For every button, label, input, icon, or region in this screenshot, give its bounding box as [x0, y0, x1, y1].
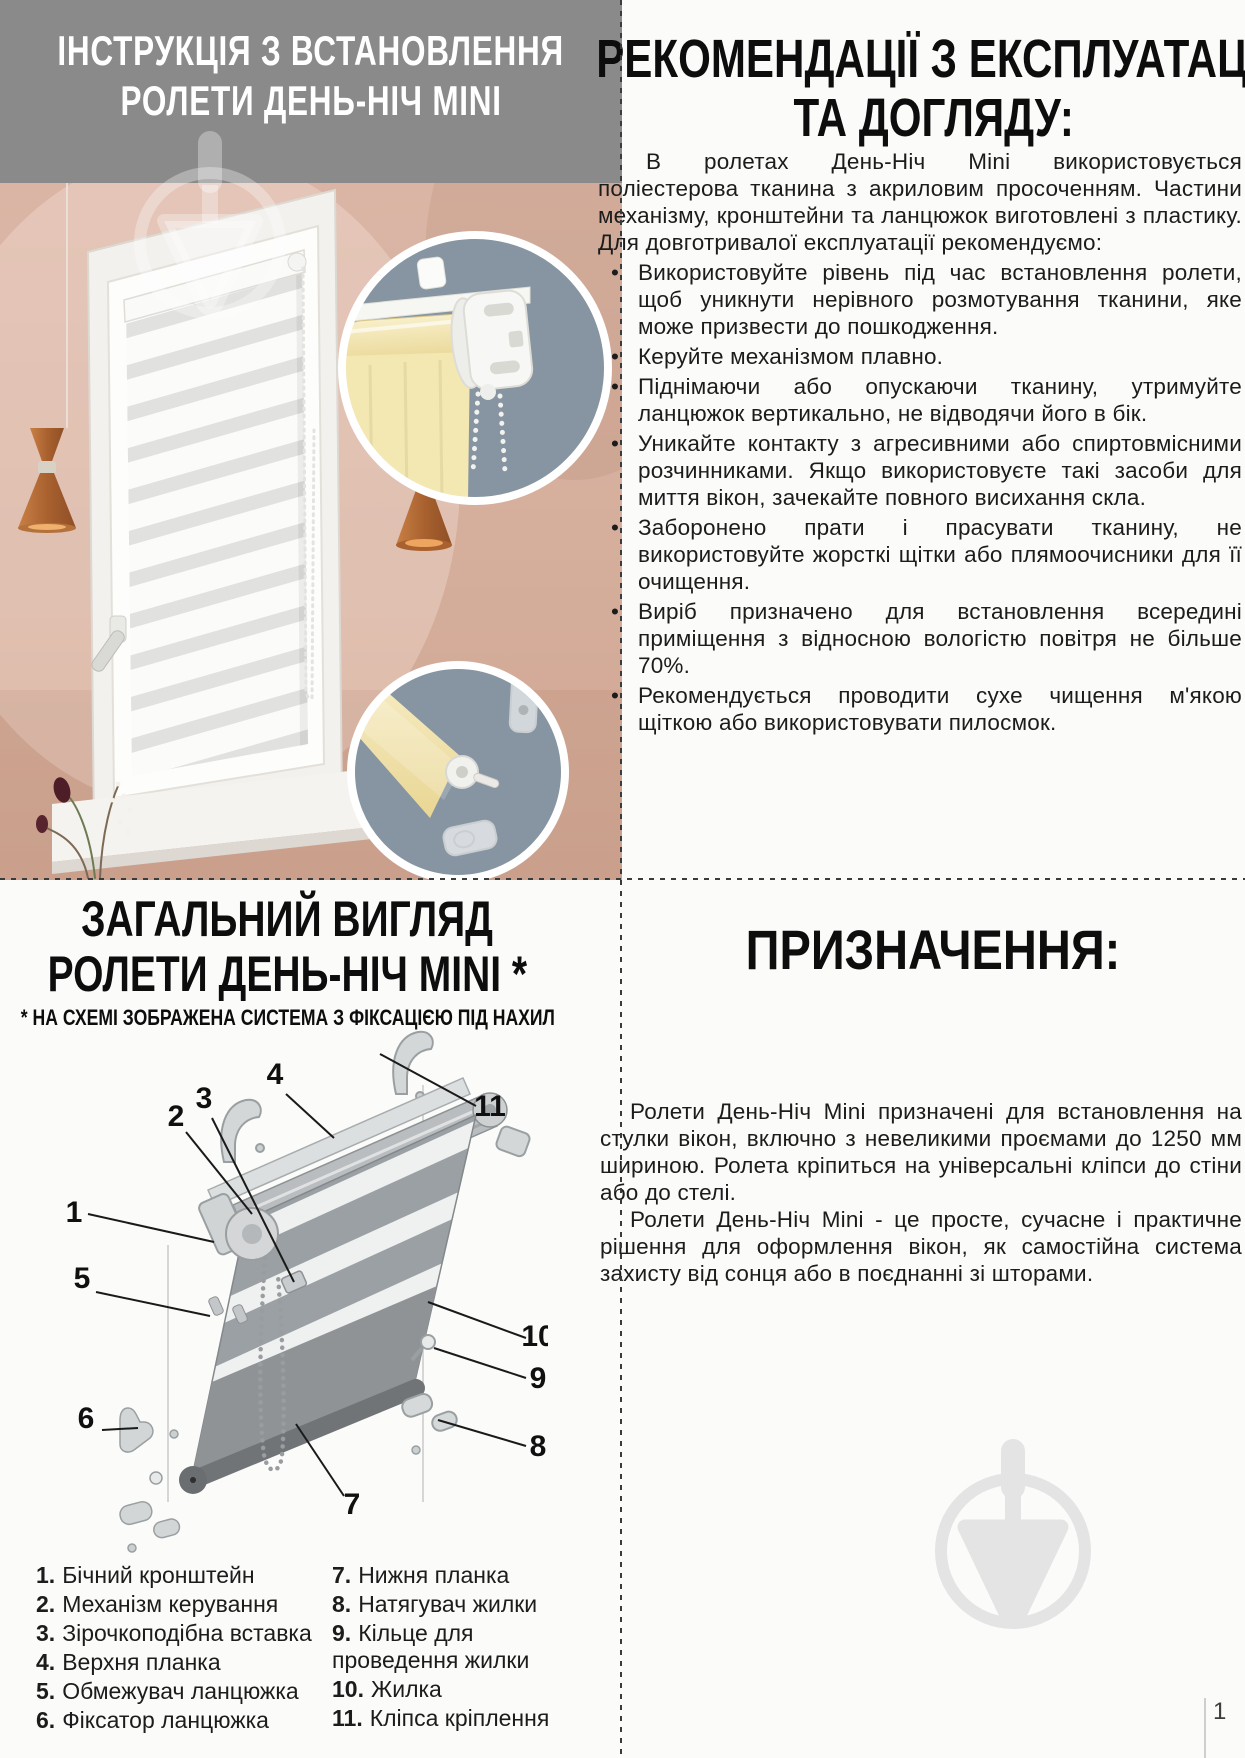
- legend-item: 10.Жилка: [332, 1676, 564, 1703]
- list-item: Керуйте механізмом плавно.: [598, 343, 1242, 370]
- purpose-title: ПРИЗНАЧЕННЯ:: [622, 920, 1245, 980]
- callout-4: 4: [267, 1058, 284, 1091]
- page-number: 1: [1213, 1698, 1226, 1726]
- installation-photo: ІНСТРУКЦІЯ З ВСТАНОВЛЕННЯ РОЛЕТИ ДЕНЬ-НІ…: [0, 0, 622, 880]
- overview-title-line1: ЗАГАЛЬНИЙ ВИГЛЯД: [82, 892, 494, 947]
- overview-title: ЗАГАЛЬНИЙ ВИГЛЯД РОЛЕТИ ДЕНЬ-НІЧ MINI * …: [0, 892, 575, 1032]
- legend-item: 1.Бічний кронштейн: [36, 1562, 336, 1589]
- legend-item: 3.Зірочкоподібна вставка: [36, 1620, 336, 1647]
- legend-column-right: 7.Нижня планка 8.Натягувач жилки 9.Кільц…: [332, 1560, 564, 1734]
- recommendations-body: В ролетах День-Ніч Mini використовується…: [598, 148, 1242, 739]
- callout-3: 3: [196, 1082, 213, 1115]
- inset-photo-top-mechanism: [339, 235, 608, 501]
- list-item: Використовуйте рівень під час встановлен…: [598, 259, 1242, 340]
- legend-item: 11.Кліпса кріплення: [332, 1705, 564, 1732]
- list-item: Піднімаючи або опускаючи тканину, утриму…: [598, 373, 1242, 427]
- legend-item: 5.Обмежувач ланцюжка: [36, 1678, 336, 1705]
- list-item: Рекомендується проводити сухе чищення м'…: [598, 682, 1242, 736]
- recommendations-title: РЕКОМЕНДАЦІЇ З ЕКСПЛУАТАЦІЇ ТА ДОГЛЯДУ:: [622, 30, 1245, 148]
- callout-10: 10: [521, 1320, 548, 1353]
- chain-fixator-parts: [118, 1408, 181, 1552]
- instruction-leaflet-page: ІНСТРУКЦІЯ З ВСТАНОВЛЕННЯ РОЛЕТИ ДЕНЬ-НІ…: [0, 0, 1245, 1758]
- legend-item: 8.Натягувач жилки: [332, 1591, 564, 1618]
- brand-watermark-icon: [895, 1430, 1135, 1670]
- page-number-divider: [1204, 1698, 1206, 1758]
- window-blind-photo: [0, 0, 622, 880]
- recommendations-title-line2: ТА ДОГЛЯДУ:: [793, 89, 1073, 148]
- list-item: Уникайте контакту з агресивними або спир…: [598, 430, 1242, 511]
- legend-item: 7.Нижня планка: [332, 1562, 564, 1589]
- day-night-blind-fabric: [126, 252, 308, 776]
- installation-title-line2: РОЛЕТИ ДЕНЬ-НІЧ MINI: [120, 76, 501, 126]
- callout-6: 6: [78, 1402, 95, 1435]
- purpose-paragraph-1: Ролети День-Ніч Mini призначені для вста…: [600, 1098, 1242, 1206]
- horizontal-dashed-divider: [0, 878, 1245, 880]
- installation-title-line1: ІНСТРУКЦІЯ З ВСТАНОВЛЕННЯ: [58, 26, 564, 76]
- callout-8: 8: [530, 1430, 547, 1463]
- legend-item: 6.Фіксатор ланцюжка: [36, 1707, 336, 1734]
- control-mechanism: [447, 289, 534, 393]
- installation-title: ІНСТРУКЦІЯ З ВСТАНОВЛЕННЯ РОЛЕТИ ДЕНЬ-НІ…: [0, 26, 622, 126]
- callout-9: 9: [530, 1362, 547, 1395]
- callout-1: 1: [66, 1196, 83, 1229]
- recommendations-intro: В ролетах День-Ніч Mini використовується…: [598, 148, 1242, 256]
- callout-7: 7: [344, 1488, 361, 1521]
- legend-column-left: 1.Бічний кронштейн 2.Механізм керування …: [36, 1560, 336, 1736]
- overview-note: * НА СХЕМІ ЗОБРАЖЕНА СИСТЕМА З ФІКСАЦІЄЮ…: [20, 1004, 554, 1032]
- purpose-paragraph-2: Ролети День-Ніч Mini - це просте, сучасн…: [600, 1206, 1242, 1287]
- purpose-body: Ролети День-Ніч Mini призначені для вста…: [600, 1098, 1242, 1287]
- legend-item: 2.Механізм керування: [36, 1591, 336, 1618]
- legend-item: 4.Верхня планка: [36, 1649, 336, 1676]
- callout-2: 2: [168, 1100, 185, 1133]
- callout-5: 5: [74, 1262, 91, 1295]
- callout-11: 11: [474, 1090, 506, 1123]
- recommendations-title-line1: РЕКОМЕНДАЦІЇ З ЕКСПЛУАТАЦІЇ: [596, 30, 1245, 89]
- overview-title-line2: РОЛЕТИ ДЕНЬ-НІЧ MINI *: [48, 947, 527, 1002]
- recommendations-list: Використовуйте рівень під час встановлен…: [598, 259, 1242, 736]
- blind-exploded-diagram: 1 2 3 4 5 6 7 8 9 10 11: [28, 1030, 548, 1570]
- legend-item: 9.Кільце для проведення жилки: [332, 1620, 564, 1674]
- list-item: Виріб призначено для встановлення всеред…: [598, 598, 1242, 679]
- list-item: Заборонено прати і прасувати тканину, не…: [598, 514, 1242, 595]
